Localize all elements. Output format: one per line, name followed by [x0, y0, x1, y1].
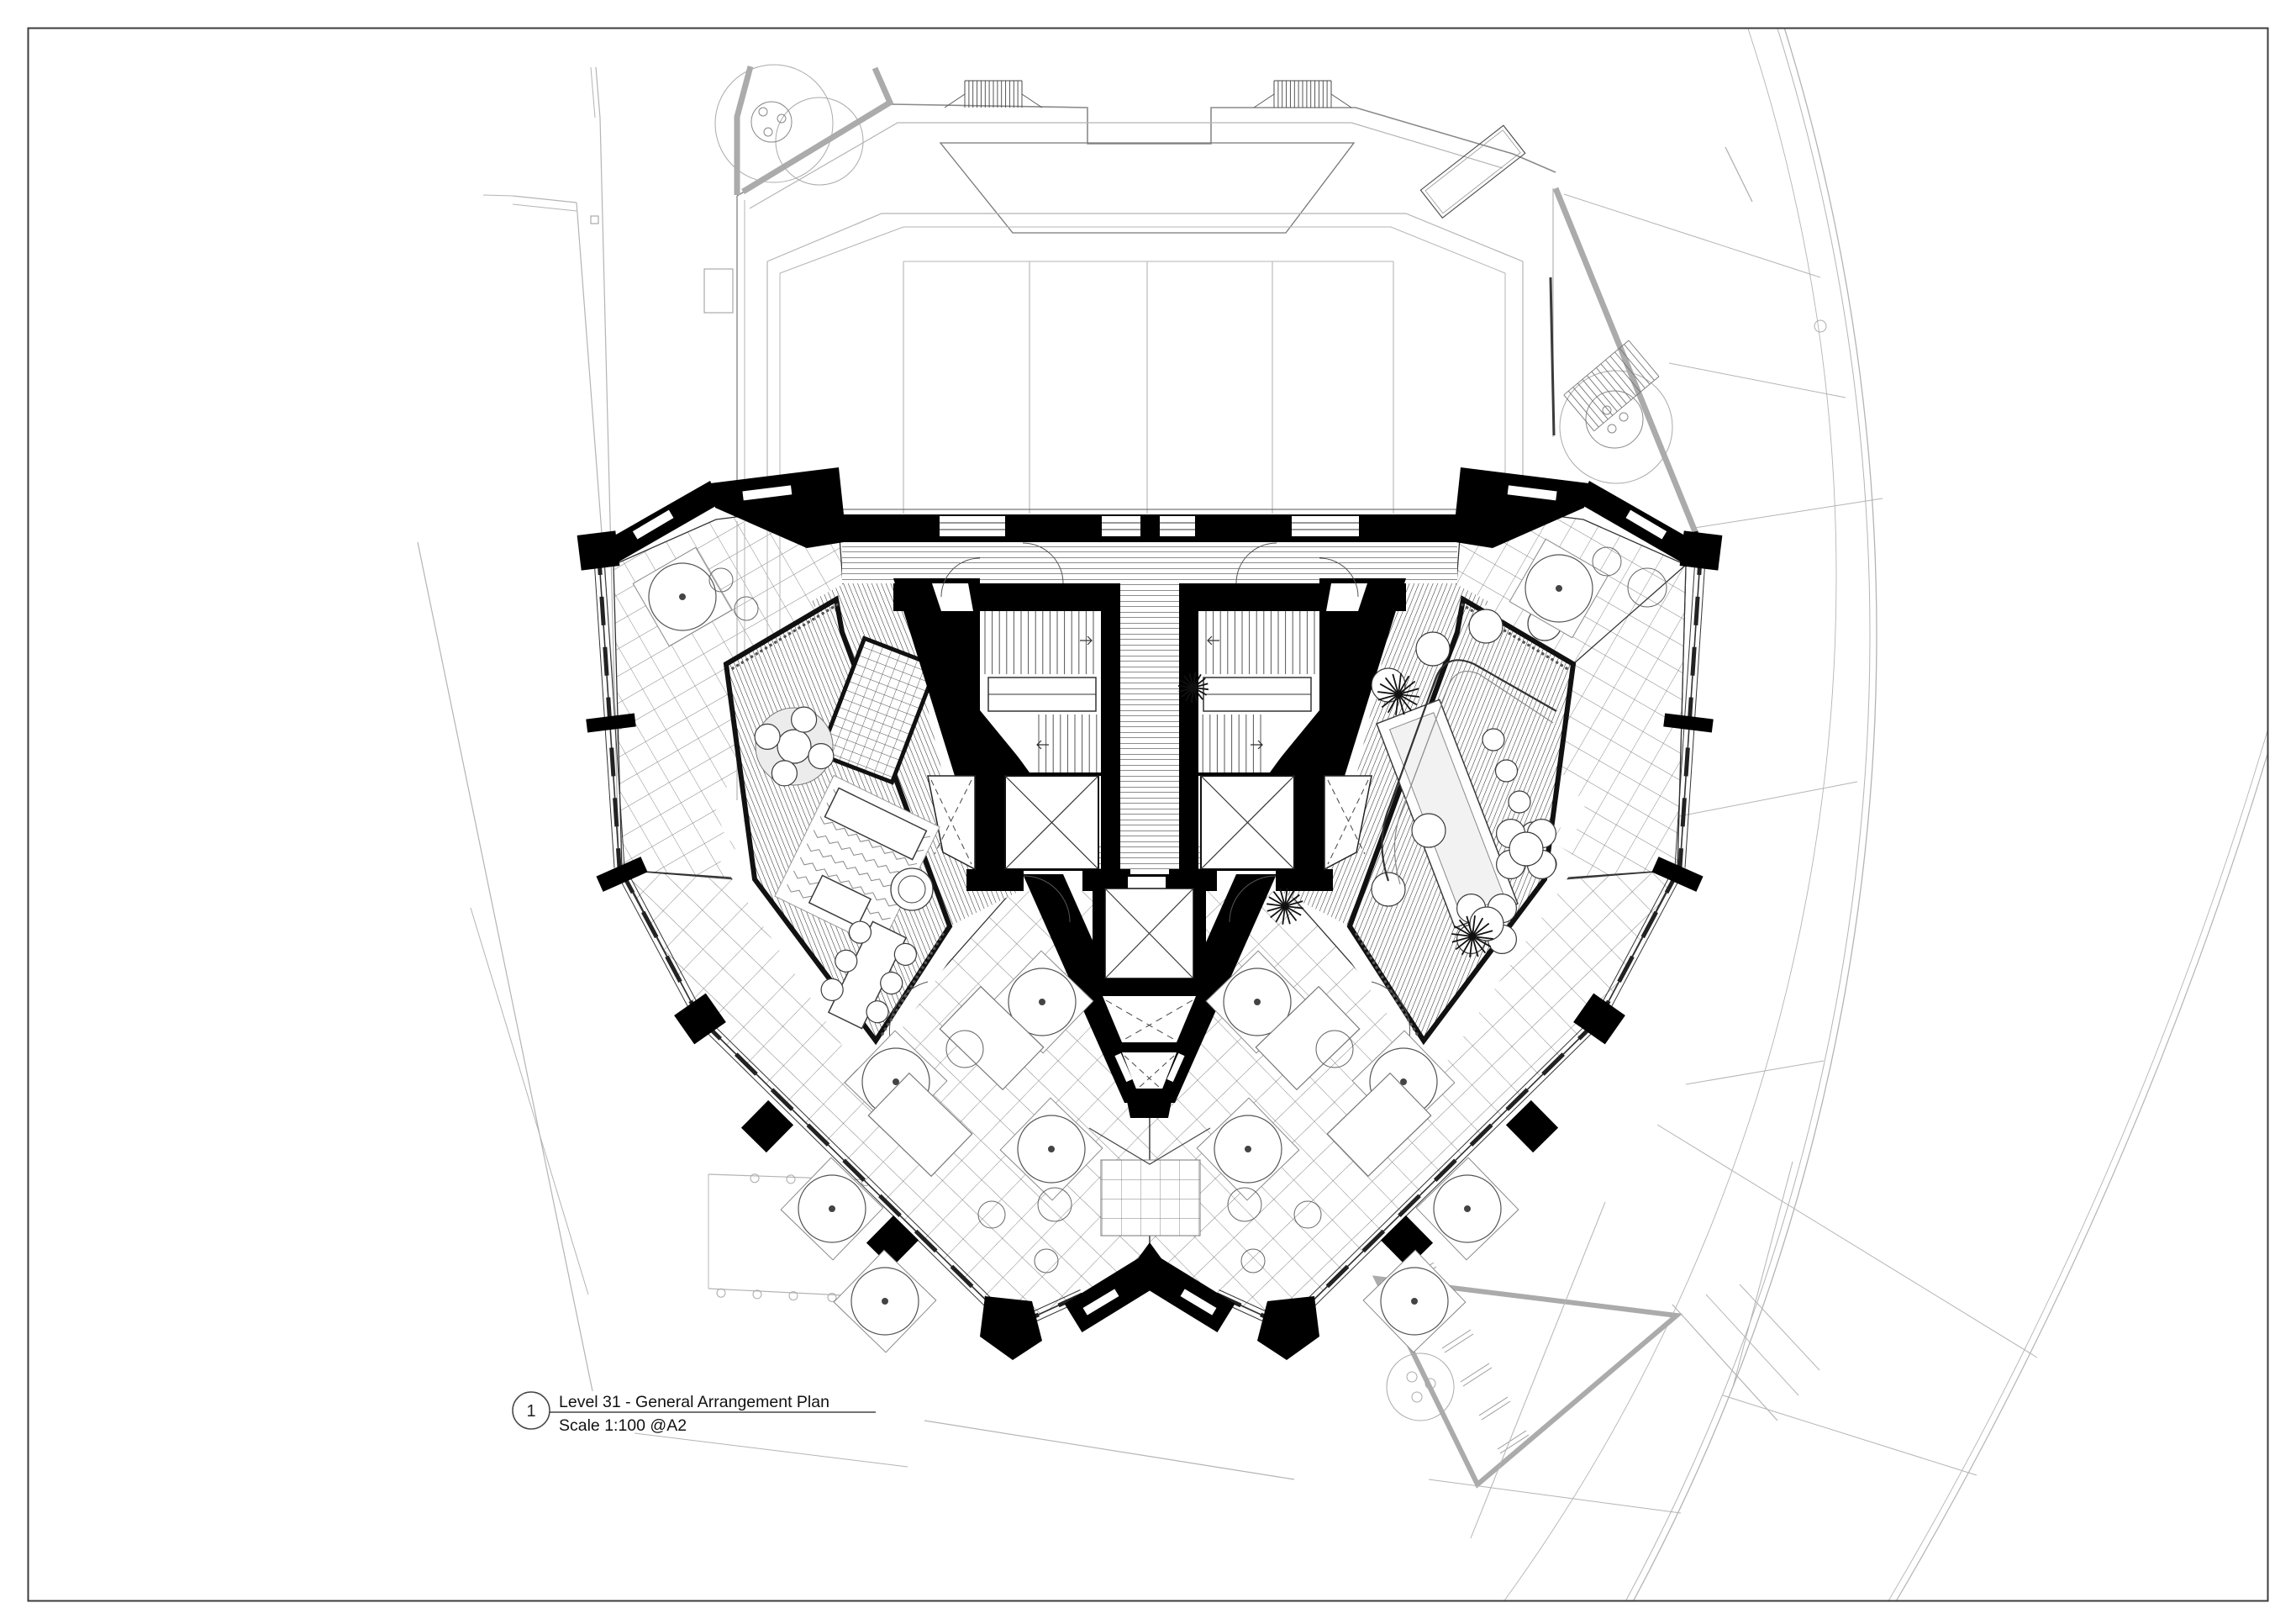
svg-text:Level 31 - General Arrangement: Level 31 - General Arrangement Plan — [559, 1393, 829, 1411]
svg-text:Scale 1:100 @A2: Scale 1:100 @A2 — [559, 1416, 687, 1435]
svg-text:1: 1 — [526, 1402, 535, 1421]
